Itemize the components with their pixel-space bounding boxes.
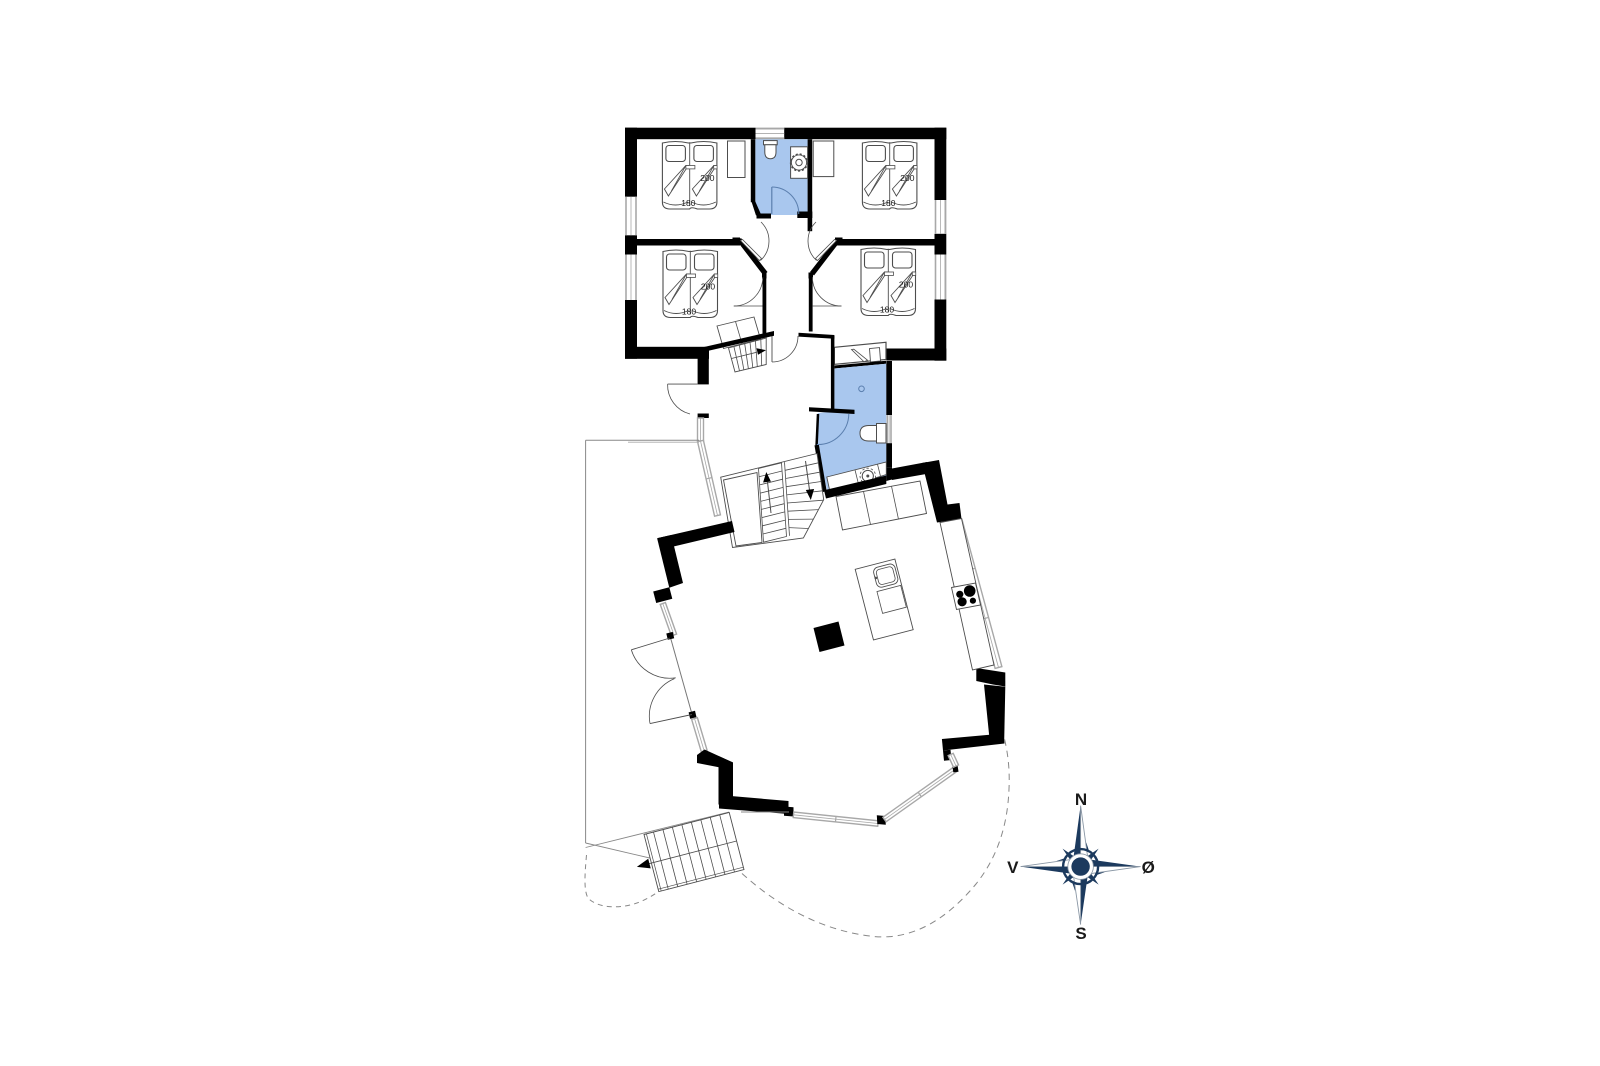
svg-text:180: 180 <box>682 307 696 317</box>
svg-text:N: N <box>1075 790 1087 809</box>
svg-text:180: 180 <box>880 305 894 315</box>
svg-text:Ø: Ø <box>1142 858 1155 877</box>
svg-text:200: 200 <box>899 280 913 290</box>
svg-text:200: 200 <box>700 173 714 183</box>
svg-text:180: 180 <box>881 198 895 208</box>
svg-text:180: 180 <box>681 198 695 208</box>
svg-text:200: 200 <box>900 173 914 183</box>
svg-text:200: 200 <box>701 282 715 292</box>
svg-text:S: S <box>1075 924 1086 943</box>
svg-text:V: V <box>1007 858 1019 877</box>
